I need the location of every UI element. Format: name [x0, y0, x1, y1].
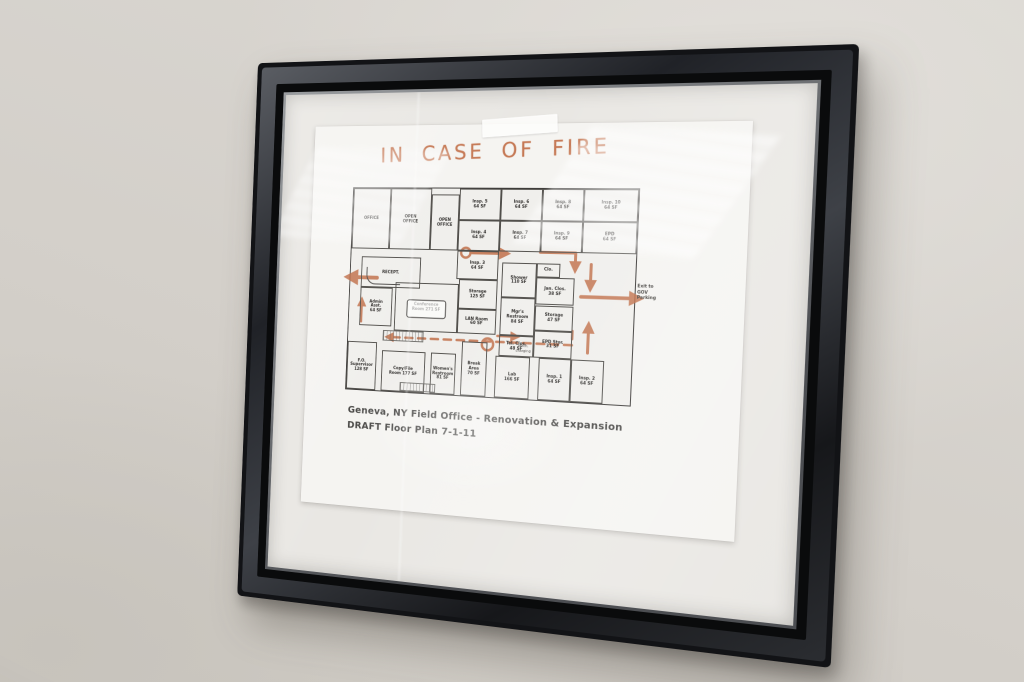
room-lab: Lab 166 SF [494, 356, 530, 400]
room-office: OFFICE [352, 188, 392, 249]
room-open-office-2: OPEN OFFICE [430, 195, 460, 251]
floor-plan-sheet: IN CASE OF FIRE Exit to GOV Parking OFFI… [301, 121, 753, 542]
room-admin-asst: Admin Asst. 64 SF [359, 287, 393, 326]
room-open-office-1: OPEN OFFICE [389, 188, 432, 250]
room-insp-7: Insp. 7 64 SF [498, 220, 541, 252]
room-fo-supervisor: F.O. Supervisor 128 SF [346, 340, 377, 390]
photo-scene: IN CASE OF FIRE Exit to GOV Parking OFFI… [0, 0, 1024, 682]
room-insp-10: Insp. 10 64 SF [583, 189, 639, 222]
room-insp-1: Insp. 1 64 SF [537, 358, 571, 402]
room-shower: Shower 110 SF [501, 262, 537, 299]
floor-plan: Exit to GOV Parking OFFICEOPEN OFFICEOPE… [345, 187, 640, 406]
room-break-area: Break Area 70 SF [460, 342, 488, 397]
room-closet: Clo. [536, 263, 560, 278]
room-insp-5: Insp. 5 64 SF [459, 189, 501, 220]
room-insp-8: Insp. 8 64 SF [542, 189, 585, 221]
room-mgr-restroom: Mgr's Restroom 84 SF [499, 297, 535, 336]
room-stair-hatch [383, 330, 424, 342]
fire-title: IN CASE OF FIRE [339, 131, 659, 168]
evac-right-down-arrow [590, 265, 591, 289]
evac-exit-right-arrow [581, 297, 640, 299]
conference-table [406, 299, 447, 319]
room-insp-3: Insp. 3 64 SF [456, 251, 498, 281]
room-conference: Conference Room 271 SF [394, 282, 459, 333]
exit-note: Exit to GOV Parking [637, 285, 675, 303]
room-epd-storage: EPD Stor. 31 SF [533, 330, 572, 359]
room-lan-room: LAN Room 60 SF [457, 308, 496, 334]
plan-caption: Geneva, NY Field Office - Renovation & E… [347, 403, 623, 452]
room-insp-2: Insp. 2 64 SF [569, 359, 604, 403]
room-storage-125: Storage 125 SF [458, 280, 497, 310]
room-insp-9: Insp. 9 64 SF [540, 221, 583, 254]
tape-strip [482, 114, 558, 138]
room-insp-6: Insp. 6 64 SF [500, 189, 543, 221]
room-storage-47: Storage 47 SF [534, 305, 573, 332]
room-jan-closet: Jan. Clos. 38 SF [535, 278, 574, 307]
picture-frame: IN CASE OF FIRE Exit to GOV Parking OFFI… [237, 44, 859, 668]
room-insp-4: Insp. 4 64 SF [458, 220, 500, 252]
evac-right-up-arrow [587, 325, 588, 353]
room-mech-charging: Mech. charging [514, 342, 532, 355]
frame-glass: IN CASE OF FIRE Exit to GOV Parking OFFI… [268, 83, 818, 626]
room-epd: EPD 64 SF [582, 221, 638, 254]
